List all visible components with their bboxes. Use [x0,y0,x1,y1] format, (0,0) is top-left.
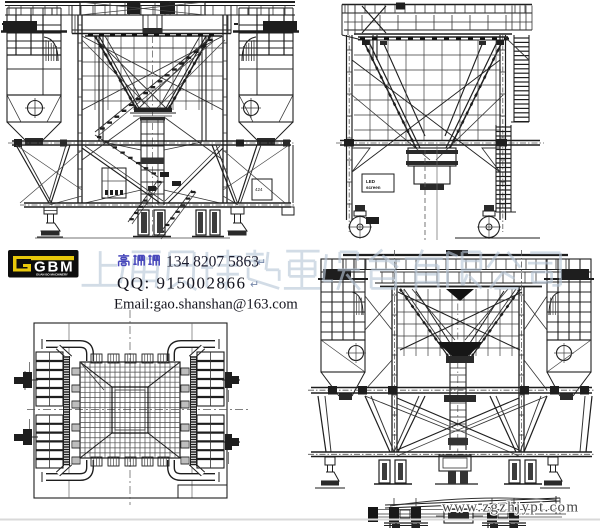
svg-text:134 8207 5863: 134 8207 5863 [166,254,259,271]
svg-text:Email:gao.shanshan@163.com: Email:gao.shanshan@163.com [114,297,298,313]
svg-text:424: 424 [255,187,263,192]
svg-text:↵: ↵ [250,279,259,291]
svg-text:www.zgzhjypt.com: www.zgzhjypt.com [442,500,579,516]
svg-text:screen: screen [366,185,381,190]
svg-text:LED: LED [366,179,376,184]
svg-text:QQ: 915002866: QQ: 915002866 [117,274,247,293]
svg-text:GUAN BO MACHINERY: GUAN BO MACHINERY [36,273,68,277]
svg-text:↵: ↵ [257,257,266,269]
